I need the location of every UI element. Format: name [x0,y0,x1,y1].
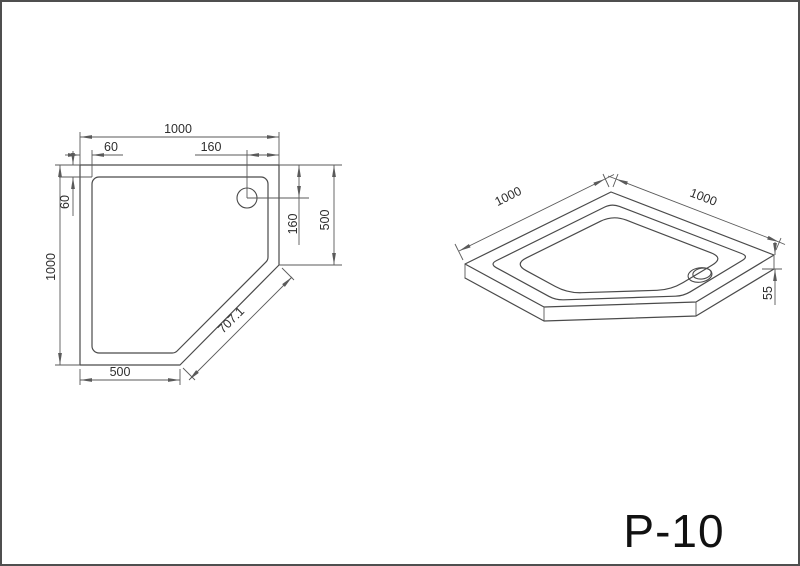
iso-base-outline [465,269,774,321]
dim-right-drain-offset-label: 160 [286,214,300,235]
iso-rim-outline [465,192,774,307]
dim-top-drain-offset: 160 [195,140,279,198]
dim-left-height: 1000 [44,165,80,365]
dim-iso-left-edge-label: 1000 [493,184,524,209]
plan-view: 1000 60 160 1000 [44,122,342,385]
dim-diagonal: 707.1 [183,268,294,380]
plan-tray-inner-outline [92,177,268,353]
dim-iso-height-label: 55 [761,286,775,300]
dim-top-drain-offset-label: 160 [201,140,222,154]
dim-bottom-width: 500 [80,365,180,385]
dim-top-rim: 60 [65,140,123,177]
iso-basin-outline [520,218,718,293]
technical-drawing-sheet: 1000 60 160 1000 [0,0,800,566]
iso-view: 1000 1000 55 [455,174,785,321]
drawing-svg: 1000 60 160 1000 [2,2,800,566]
plan-tray-outline [80,165,279,365]
dim-left-rim: 60 [58,151,92,216]
dim-bottom-width-label: 500 [110,365,131,379]
dim-top-width-label: 1000 [164,122,192,136]
product-code: P-10 [623,505,724,557]
dim-left-rim-label: 60 [58,195,72,209]
dim-top-rim-label: 60 [104,140,118,154]
dim-iso-left-edge: 1000 [455,174,614,260]
dim-left-height-label: 1000 [44,253,58,281]
dim-iso-right-edge-label: 1000 [688,186,719,209]
dim-diagonal-label: 707.1 [215,304,247,336]
iso-rim-inner [493,205,745,300]
dim-right-side-label: 500 [318,210,332,231]
